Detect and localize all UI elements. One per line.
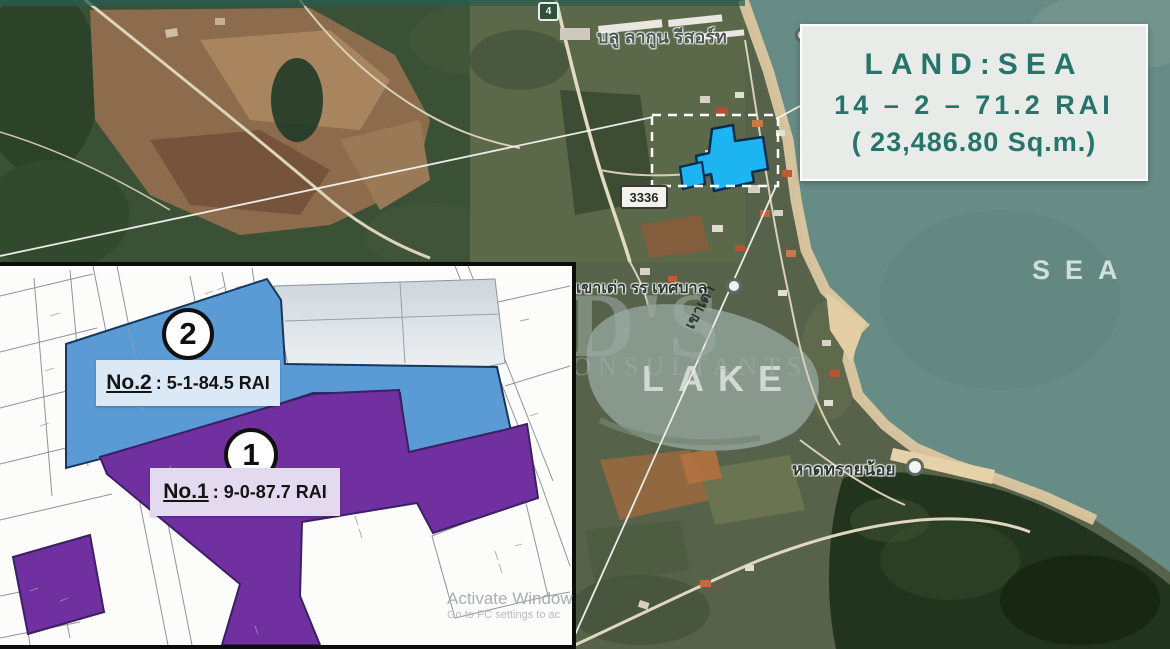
plot1-area: : 9-0-87.7 RAI xyxy=(213,482,327,503)
windows-activation-line2: Go to PC settings to ac xyxy=(447,609,573,623)
info-box-area-rai: 14 – 2 – 71.2 RAI xyxy=(834,90,1114,121)
route-number-box: 3336 xyxy=(620,185,668,209)
plot1-name: No.1 xyxy=(163,480,209,504)
school-pin-icon xyxy=(726,278,742,294)
land-sea-info-box: LAND:SEA 14 – 2 – 71.2 RAI ( 23,486.80 S… xyxy=(800,24,1148,181)
sea-label: SEA xyxy=(1032,255,1133,286)
plot2-label: No.2 : 5-1-84.5 RAI xyxy=(96,360,280,406)
school-label: านเขาเต่า รร เทศบาล xyxy=(556,276,707,301)
plot2-number-badge: 2 xyxy=(162,308,214,360)
windows-activation-line1: Activate Window xyxy=(447,588,573,609)
route-shield-icon: 4 xyxy=(538,2,559,21)
info-box-title: LAND:SEA xyxy=(865,48,1084,82)
resort-label: บลู ลากูน รีสอร์ท xyxy=(597,22,727,51)
screenshot-root: { "info_box": { "title": "LAND:SEA", "li… xyxy=(0,0,1170,649)
beach-label: หาดทรายน้อย xyxy=(792,456,895,483)
beach-pin-icon xyxy=(906,458,924,476)
plot2-area: : 5-1-84.5 RAI xyxy=(156,373,270,394)
windows-activation-watermark: Activate Window Go to PC settings to ac xyxy=(447,588,573,623)
plot1-label: No.1 : 9-0-87.7 RAI xyxy=(150,468,340,516)
info-box-area-sqm: ( 23,486.80 Sq.m.) xyxy=(852,127,1097,158)
plot2-name: No.2 xyxy=(106,371,152,395)
brand-watermark-sub: CONSULTANTS xyxy=(548,352,808,382)
